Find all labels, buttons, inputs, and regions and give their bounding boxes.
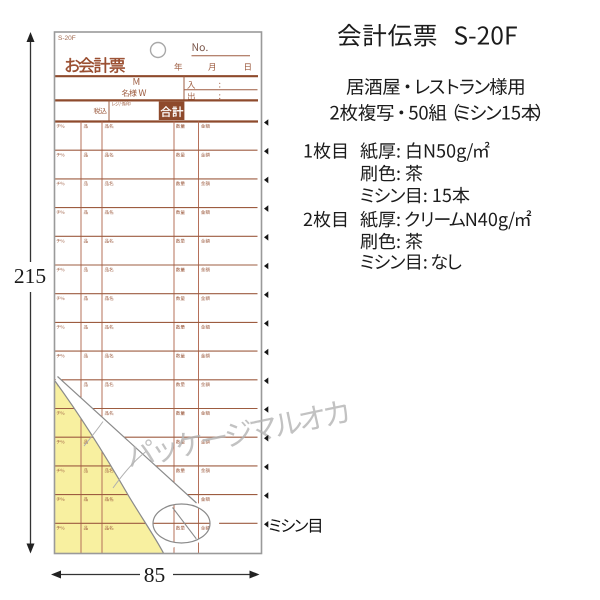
svg-text:S-20F: S-20F bbox=[58, 35, 76, 42]
svg-text:85: 85 bbox=[144, 563, 166, 587]
svg-text:215: 215 bbox=[14, 264, 46, 288]
